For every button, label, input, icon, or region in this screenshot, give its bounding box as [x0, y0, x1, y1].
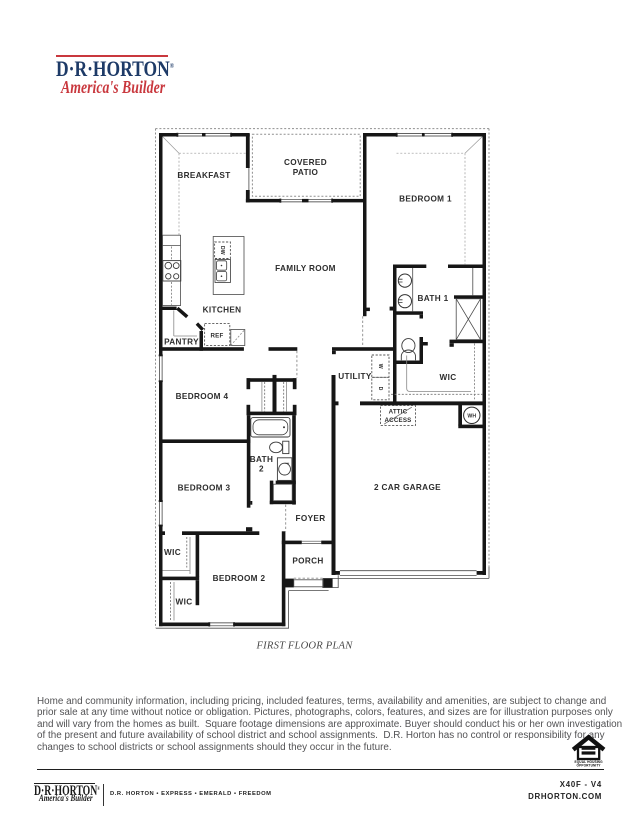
svg-text:BREAKFAST: BREAKFAST: [177, 171, 230, 180]
svg-text:ATTIC: ATTIC: [389, 409, 408, 416]
svg-text:WIC: WIC: [440, 373, 457, 382]
svg-text:D: D: [377, 387, 383, 391]
svg-text:COVERED: COVERED: [284, 158, 327, 167]
svg-text:OPPORTUNITY: OPPORTUNITY: [577, 764, 602, 768]
svg-text:PATIO: PATIO: [293, 168, 319, 177]
svg-text:2 CAR GARAGE: 2 CAR GARAGE: [374, 483, 441, 492]
svg-text:BEDROOM 2: BEDROOM 2: [213, 574, 266, 583]
svg-text:REF: REF: [211, 332, 224, 339]
svg-text:UTILITY: UTILITY: [338, 372, 372, 381]
svg-text:FOYER: FOYER: [296, 514, 326, 523]
svg-text:BEDROOM 1: BEDROOM 1: [399, 194, 452, 203]
svg-text:WH: WH: [467, 413, 476, 419]
svg-text:BATH: BATH: [250, 455, 274, 464]
svg-text:BEDROOM 3: BEDROOM 3: [178, 484, 231, 493]
svg-text:WIC: WIC: [164, 548, 181, 557]
svg-text:DW: DW: [219, 246, 225, 255]
svg-text:FIRST FLOOR PLAN: FIRST FLOOR PLAN: [256, 641, 354, 652]
svg-text:PANTRY: PANTRY: [164, 337, 199, 346]
svg-text:BEDROOM 4: BEDROOM 4: [176, 392, 229, 401]
svg-text:2: 2: [259, 464, 264, 473]
svg-text:W: W: [377, 364, 383, 369]
svg-text:KITCHEN: KITCHEN: [203, 306, 242, 315]
svg-text:FAMILY ROOM: FAMILY ROOM: [275, 264, 336, 273]
svg-text:WIC: WIC: [176, 598, 193, 607]
svg-text:BATH 1: BATH 1: [417, 294, 448, 303]
svg-text:PORCH: PORCH: [292, 556, 323, 565]
svg-text:ACCESS: ACCESS: [385, 417, 412, 424]
